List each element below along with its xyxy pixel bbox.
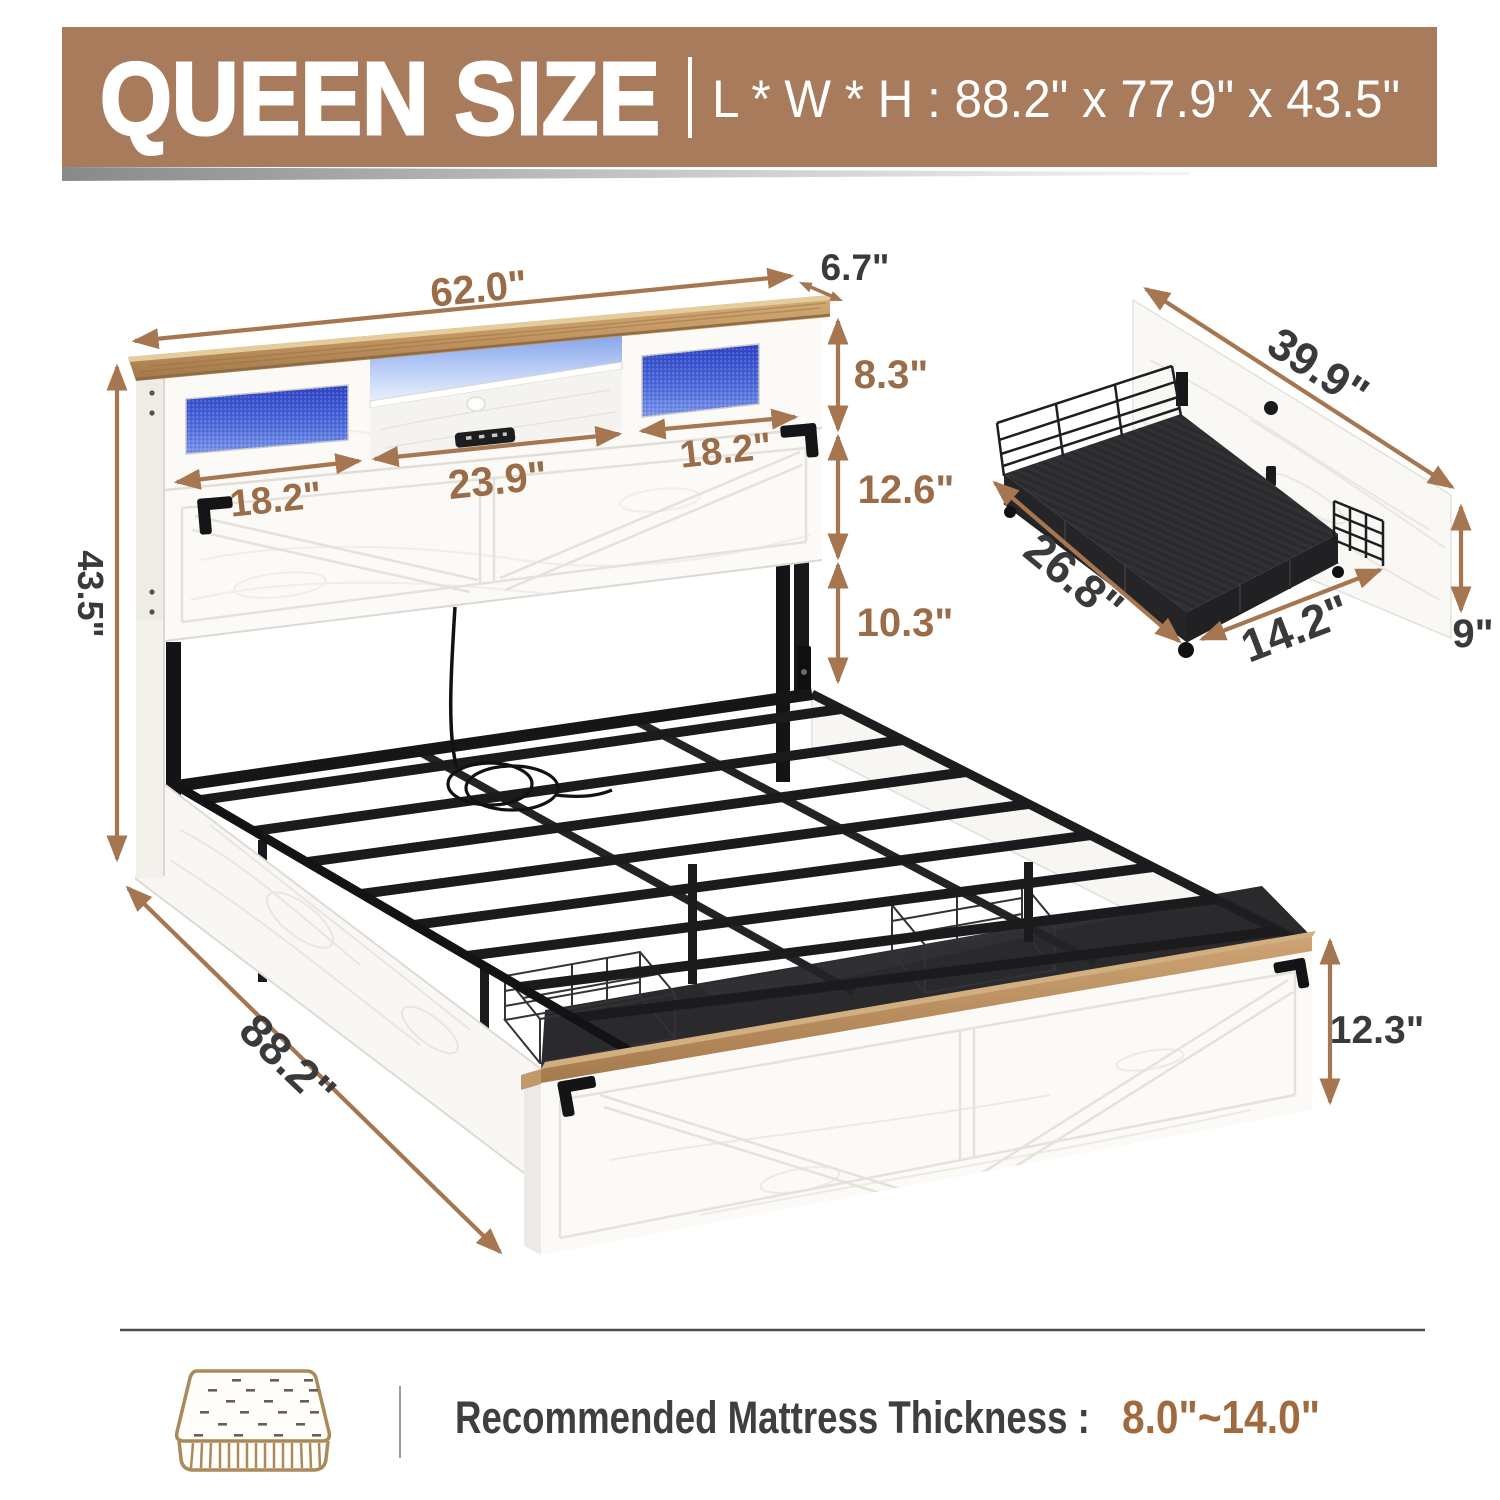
svg-text:10.3": 10.3" [857,601,954,645]
svg-text:6.7": 6.7" [821,247,890,288]
svg-text:62.0": 62.0" [428,262,529,315]
svg-text:8.3": 8.3" [854,353,929,397]
svg-text:9": 9" [1452,612,1493,656]
svg-text:QUEEN SIZE: QUEEN SIZE [100,41,660,156]
svg-text:43.5": 43.5" [70,550,111,637]
svg-text:12.6": 12.6" [858,468,955,512]
svg-text:Recommended Mattress Thickness: Recommended Mattress Thickness : 8.0"~14… [455,1391,1320,1443]
svg-text:12.3": 12.3" [1330,1009,1424,1052]
svg-text:L * W * H : 88.2" x 77.9" x 4: L * W * H : 88.2" x 77.9" x 43.5" [712,70,1400,129]
